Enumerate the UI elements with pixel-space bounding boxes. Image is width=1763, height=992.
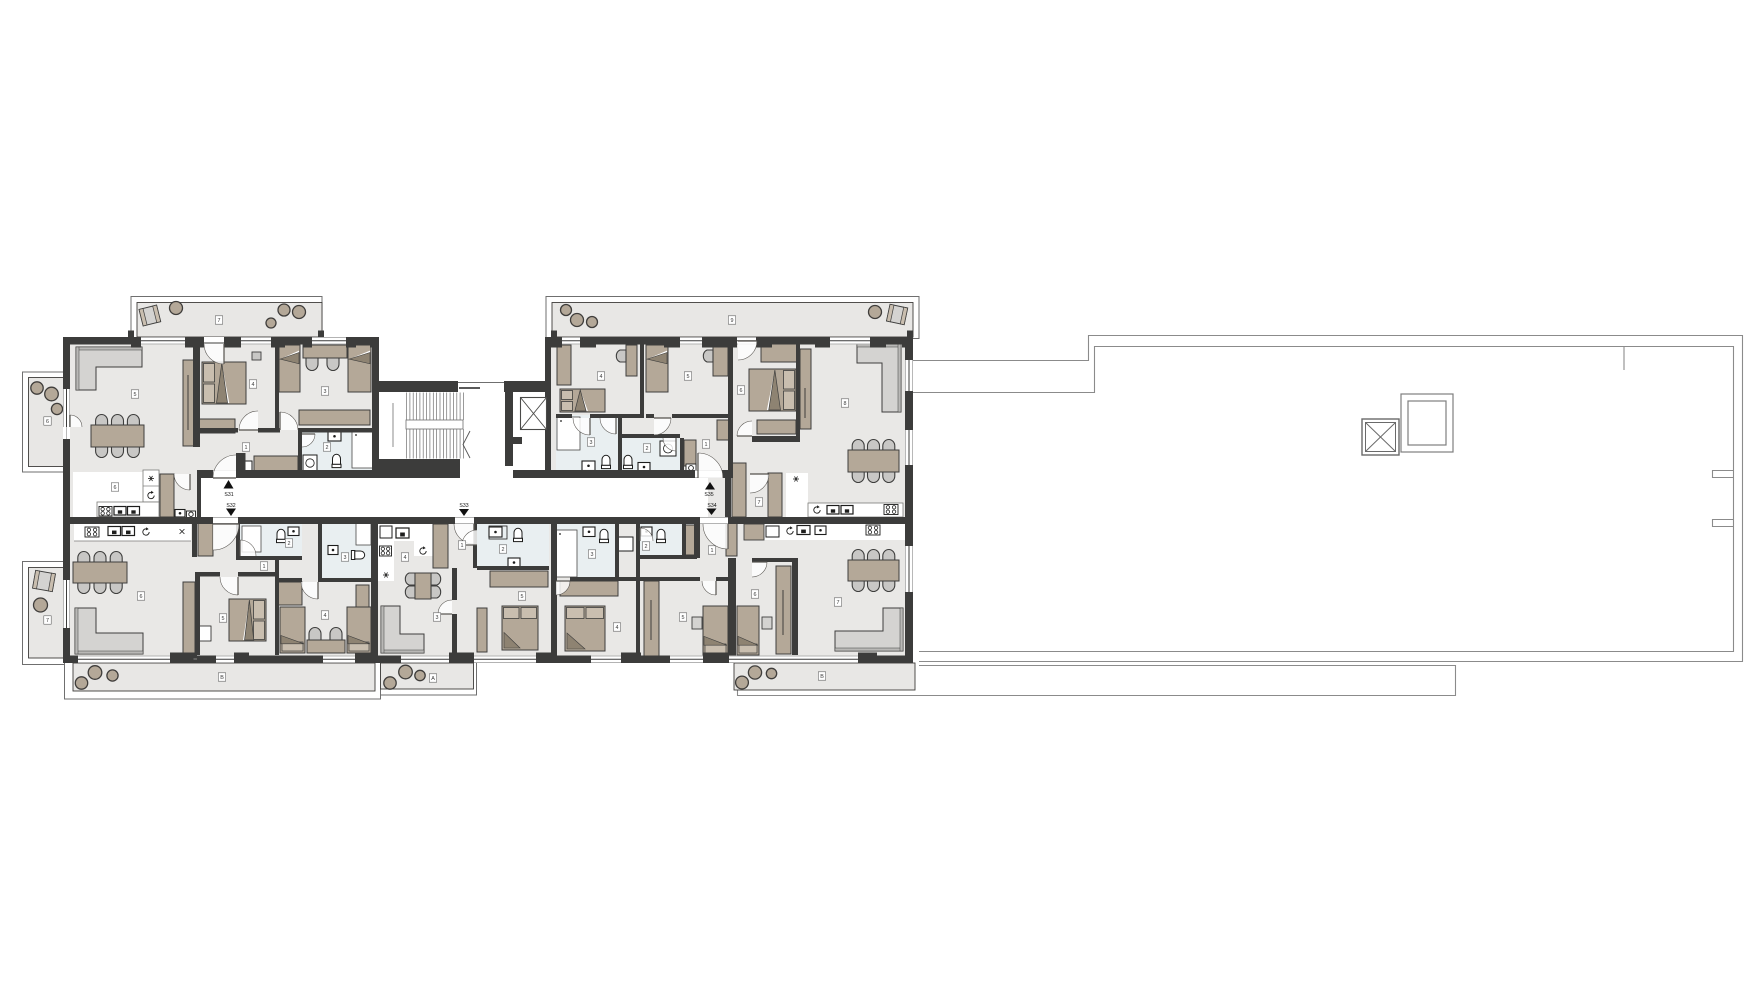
svg-text:9: 9 (731, 318, 734, 324)
svg-text:7: 7 (837, 600, 840, 606)
svg-text:5: 5 (687, 374, 690, 380)
svg-text:4: 4 (252, 382, 255, 388)
svg-text:6: 6 (754, 592, 757, 598)
svg-text:B: B (220, 675, 224, 681)
svg-text:2: 2 (288, 541, 291, 547)
svg-text:3: 3 (324, 389, 327, 395)
svg-text:6: 6 (740, 388, 743, 394)
svg-text:2: 2 (645, 544, 648, 550)
svg-text:A: A (431, 676, 435, 682)
svg-text:S35: S35 (704, 492, 713, 498)
svg-text:4: 4 (616, 625, 619, 631)
svg-text:7: 7 (46, 618, 49, 624)
svg-text:3: 3 (590, 440, 593, 446)
svg-text:5: 5 (521, 594, 524, 600)
svg-text:6: 6 (114, 485, 117, 491)
svg-text:1: 1 (245, 445, 248, 451)
svg-text:3: 3 (436, 615, 439, 621)
svg-text:3: 3 (344, 555, 347, 561)
svg-text:2: 2 (502, 547, 505, 553)
svg-text:S33: S33 (459, 503, 468, 509)
svg-text:4: 4 (324, 613, 327, 619)
svg-text:6: 6 (140, 594, 143, 600)
svg-text:2: 2 (646, 446, 649, 452)
svg-text:1: 1 (705, 442, 708, 448)
svg-text:B: B (820, 674, 824, 680)
svg-text:1: 1 (263, 564, 266, 570)
svg-text:3: 3 (591, 552, 594, 558)
svg-text:6: 6 (46, 419, 49, 425)
svg-text:7: 7 (218, 318, 221, 324)
svg-text:1: 1 (461, 543, 464, 549)
svg-text:1: 1 (711, 548, 714, 554)
svg-text:5: 5 (222, 616, 225, 622)
svg-text:7: 7 (758, 500, 761, 506)
svg-text:8: 8 (844, 401, 847, 407)
svg-text:4: 4 (600, 374, 603, 380)
svg-text:S31: S31 (224, 492, 233, 498)
svg-text:4: 4 (404, 555, 407, 561)
svg-text:5: 5 (682, 615, 685, 621)
svg-text:S32: S32 (226, 503, 235, 509)
svg-text:5: 5 (134, 392, 137, 398)
svg-text:2: 2 (326, 445, 329, 451)
svg-text:S34: S34 (707, 503, 716, 509)
